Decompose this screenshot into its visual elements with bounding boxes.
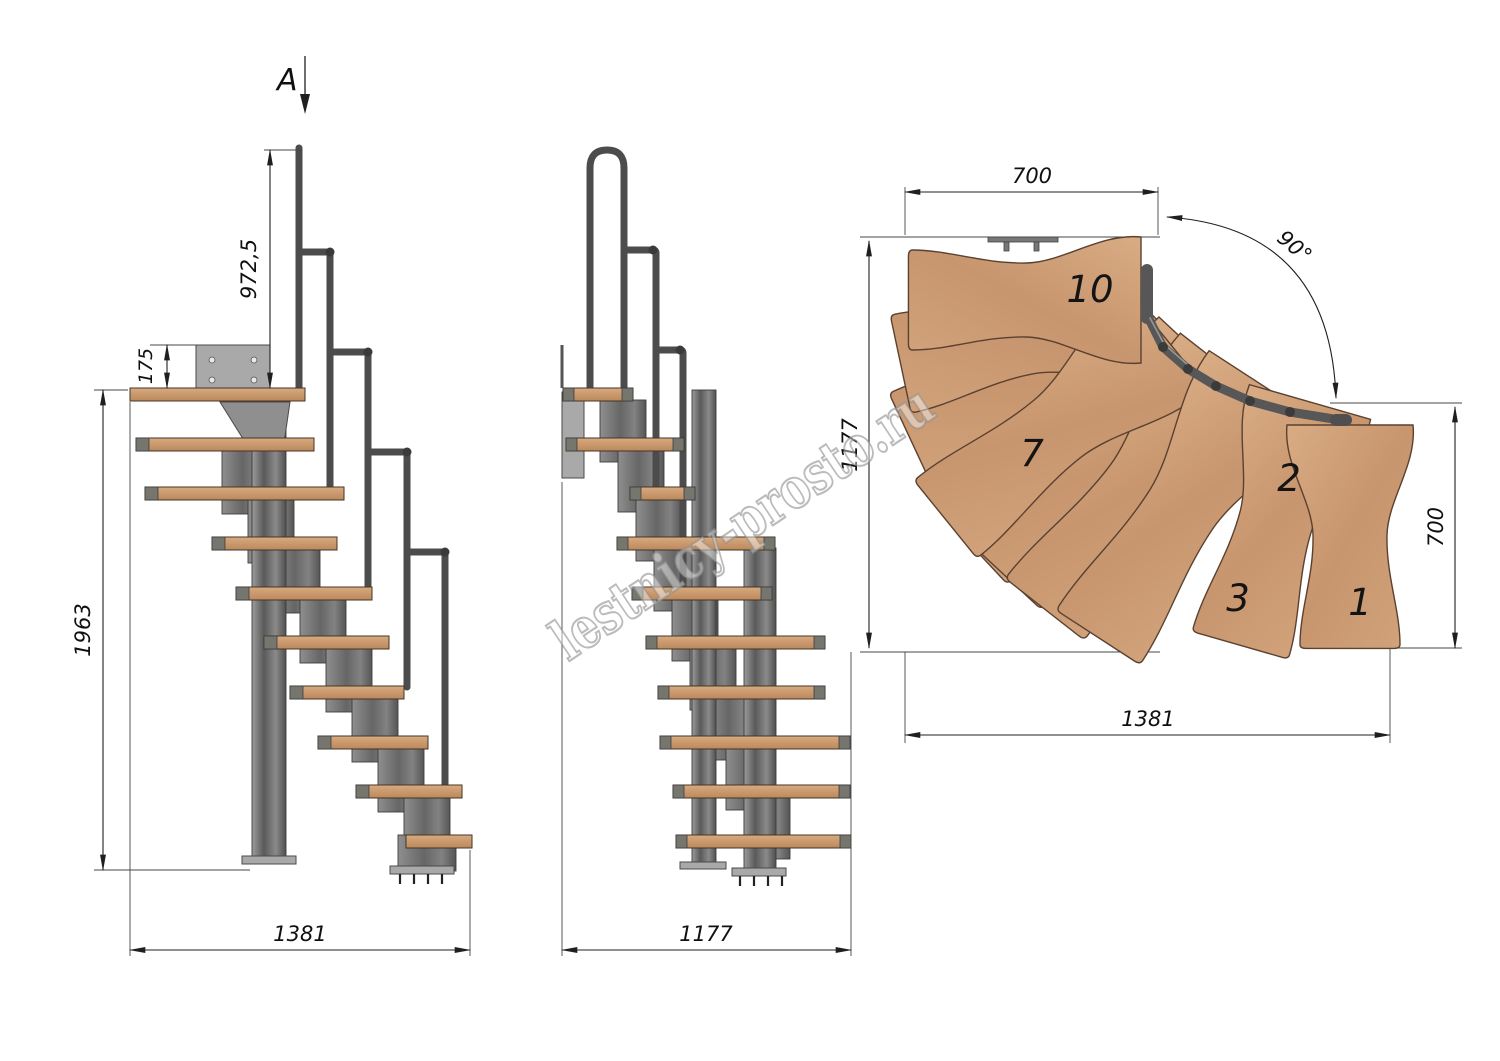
section-arrow-a: A (275, 56, 310, 114)
tread (212, 537, 337, 550)
dim-rail-height: 972,5 (237, 239, 261, 299)
front-base-plate (680, 862, 726, 869)
dim-total-width: 1177 (679, 922, 733, 946)
dim-plate-offset: 175 (135, 348, 157, 384)
staircase-technical-drawing: A (0, 0, 1500, 1061)
tread (630, 487, 695, 500)
tread (676, 835, 851, 848)
plan-view: 10 7 3 2 1 700 1177 90° 700 1381 (838, 164, 1462, 743)
handrail-elbow (364, 348, 373, 357)
handrail-elbow (403, 448, 412, 457)
dim-total-height: 1963 (71, 603, 95, 656)
tread (136, 438, 314, 451)
dim-plan-angle: 90° (1273, 225, 1317, 267)
tread (660, 736, 850, 749)
rail-knuckle (1183, 364, 1193, 374)
tread (236, 587, 372, 600)
tread-label-1: 1 (1348, 581, 1372, 624)
tread-label-10: 10 (1066, 268, 1113, 311)
tread (145, 487, 344, 500)
front-wall-plate (562, 392, 584, 478)
drawing-canvas: A (0, 0, 1500, 1061)
rail-knuckle (1285, 407, 1295, 417)
handrail-elbow (326, 248, 335, 257)
tread (646, 636, 825, 649)
front-base-plate-2 (732, 868, 786, 876)
plan-wall-bracket (988, 237, 1058, 251)
rail-knuckle (1158, 342, 1168, 352)
section-label: A (275, 63, 298, 98)
section-arrow-head (300, 94, 310, 114)
side-base-plate (242, 856, 296, 864)
handrail-elbow (676, 346, 685, 355)
handrail-elbow (441, 548, 450, 557)
dim-total-run: 1381 (273, 922, 326, 946)
tread (673, 785, 850, 798)
anchor-bolts (400, 874, 442, 884)
dim-plan-bottom-width: 1381 (1121, 707, 1174, 731)
rail-knuckle (1245, 396, 1255, 406)
dim-plan-top-width: 700 (1012, 164, 1052, 188)
wall-mount-plate (196, 345, 270, 389)
side-base-plate-2 (390, 866, 454, 874)
tread (563, 388, 633, 401)
side-elevation-view: A (71, 56, 472, 956)
tread (290, 686, 404, 699)
side-support-column (252, 392, 286, 858)
rail-knuckle (1211, 381, 1221, 391)
tread (264, 636, 389, 649)
handrail-loop (590, 150, 624, 388)
dim-plan-right-depth: 700 (1424, 507, 1448, 547)
tread (658, 686, 825, 699)
tread-label-3: 3 (1226, 577, 1250, 620)
tread (130, 388, 305, 401)
tread (566, 438, 684, 451)
rail-end-cap (1330, 414, 1352, 426)
tread-label-2: 2 (1277, 457, 1301, 500)
tread (356, 785, 462, 798)
anchor-bolts (740, 876, 782, 886)
tread-label-7: 7 (1020, 432, 1044, 475)
tread (406, 835, 472, 848)
handrail-elbow (649, 246, 658, 255)
tread (318, 736, 428, 749)
